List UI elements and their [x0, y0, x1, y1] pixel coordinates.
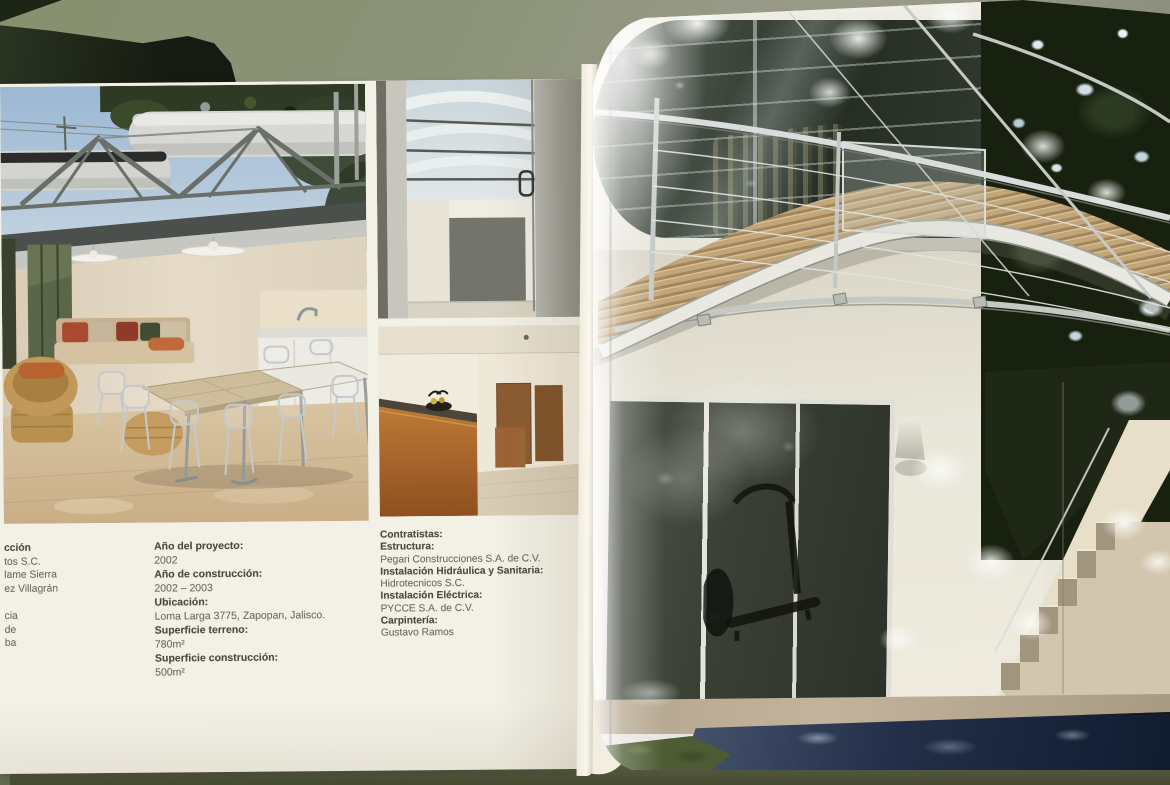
- project-details-column: Año del proyecto: 2002 Año de construcci…: [154, 538, 330, 680]
- detail-label: Año de construcción:: [154, 566, 329, 582]
- dark-corner-object: [0, 0, 62, 22]
- skylight-photo-art: [376, 79, 590, 319]
- bar-counter: [379, 406, 478, 517]
- credits-line: lame Sierra: [4, 568, 134, 583]
- contractors-column: Contratistas: Estructura: Pegari Constru…: [380, 528, 576, 640]
- credits-line: ez Villagrán: [4, 582, 134, 597]
- right-page-house-photo: [593, 0, 1170, 770]
- credits-line: cia: [5, 609, 135, 624]
- bar-photo-art: [378, 325, 590, 517]
- credits-line: [4, 595, 134, 610]
- interior-bar-photo: [378, 325, 590, 517]
- credits-line: de: [5, 622, 135, 637]
- credits-line: ba: [5, 636, 135, 651]
- treadmill-silhouette: [702, 462, 825, 694]
- dark-table-object: [0, 0, 238, 90]
- detail-value: 780m²: [155, 636, 330, 652]
- detail-label: Superficie construcción:: [155, 650, 330, 666]
- credits-line: cción: [4, 541, 134, 556]
- detail-value: 500m²: [155, 664, 330, 680]
- detail-value: 2002: [154, 552, 329, 568]
- detail-label: Superficie terreno:: [155, 622, 330, 638]
- terrace-photo-art: [0, 84, 369, 524]
- sliding-glass-doors: [601, 396, 895, 718]
- detail-label: Año del proyecto:: [154, 538, 329, 554]
- left-page: cción tos S.C. lame Sierra ez Villagrán …: [0, 79, 604, 774]
- detail-value: 2002 – 2003: [154, 580, 329, 596]
- skylight-corridor-photo: [376, 79, 590, 319]
- detail-label: Ubicación:: [154, 594, 329, 610]
- terrace-dining-photo: [0, 84, 369, 524]
- spine-shadow: [609, 0, 612, 770]
- credits-column: cción tos S.C. lame Sierra ez Villagrán …: [4, 541, 135, 651]
- sofa: [54, 317, 194, 364]
- credits-line: tos S.C.: [4, 554, 134, 569]
- detail-value: Loma Larga 3775, Zapopan, Jalisco.: [155, 608, 330, 624]
- wicker-chair: [3, 356, 78, 443]
- contractor-value: Gustavo Ramos: [381, 626, 576, 640]
